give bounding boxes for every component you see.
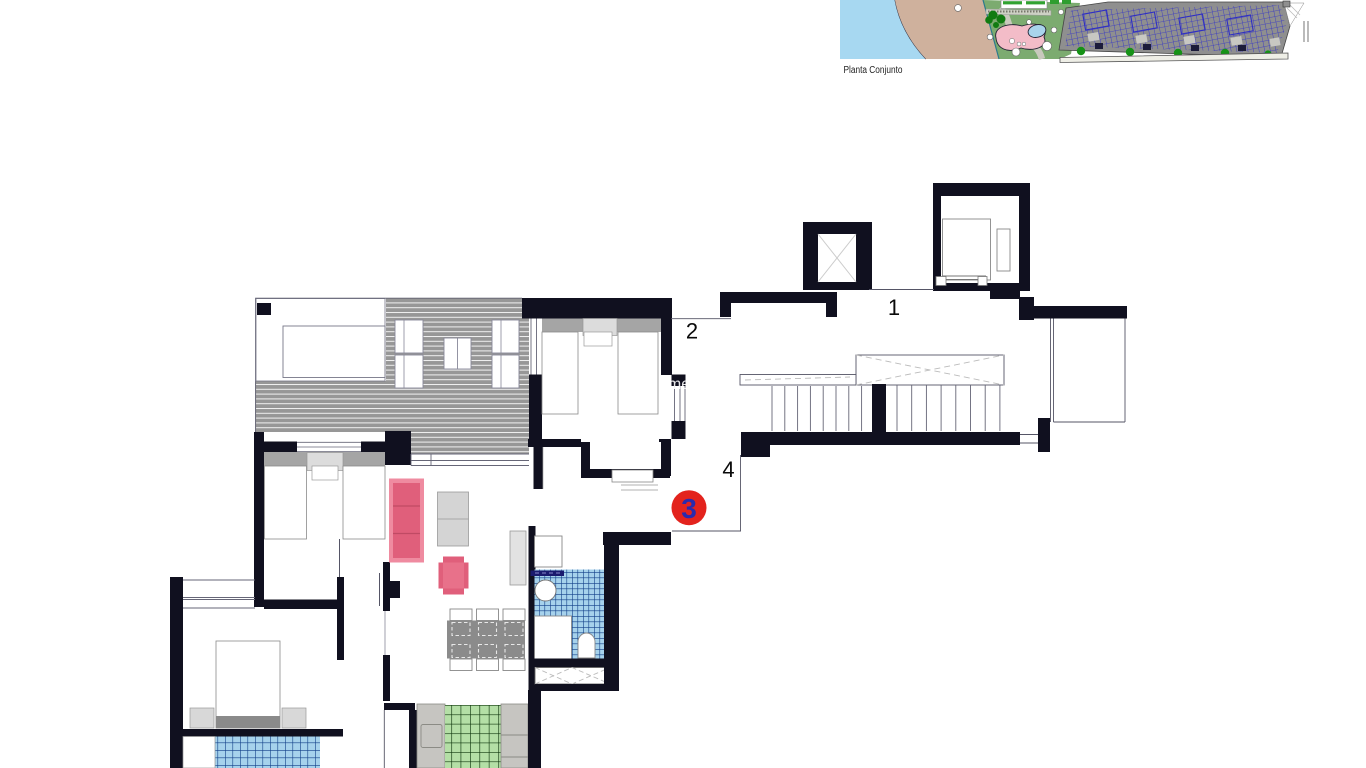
svg-text:Planta Conjunto: Planta Conjunto (844, 65, 903, 76)
svg-text:ame: ame (659, 376, 690, 393)
svg-text:4: 4 (722, 457, 734, 482)
svg-text:2: 2 (686, 319, 698, 344)
svg-text:1: 1 (888, 295, 900, 320)
svg-text:3: 3 (681, 493, 697, 524)
